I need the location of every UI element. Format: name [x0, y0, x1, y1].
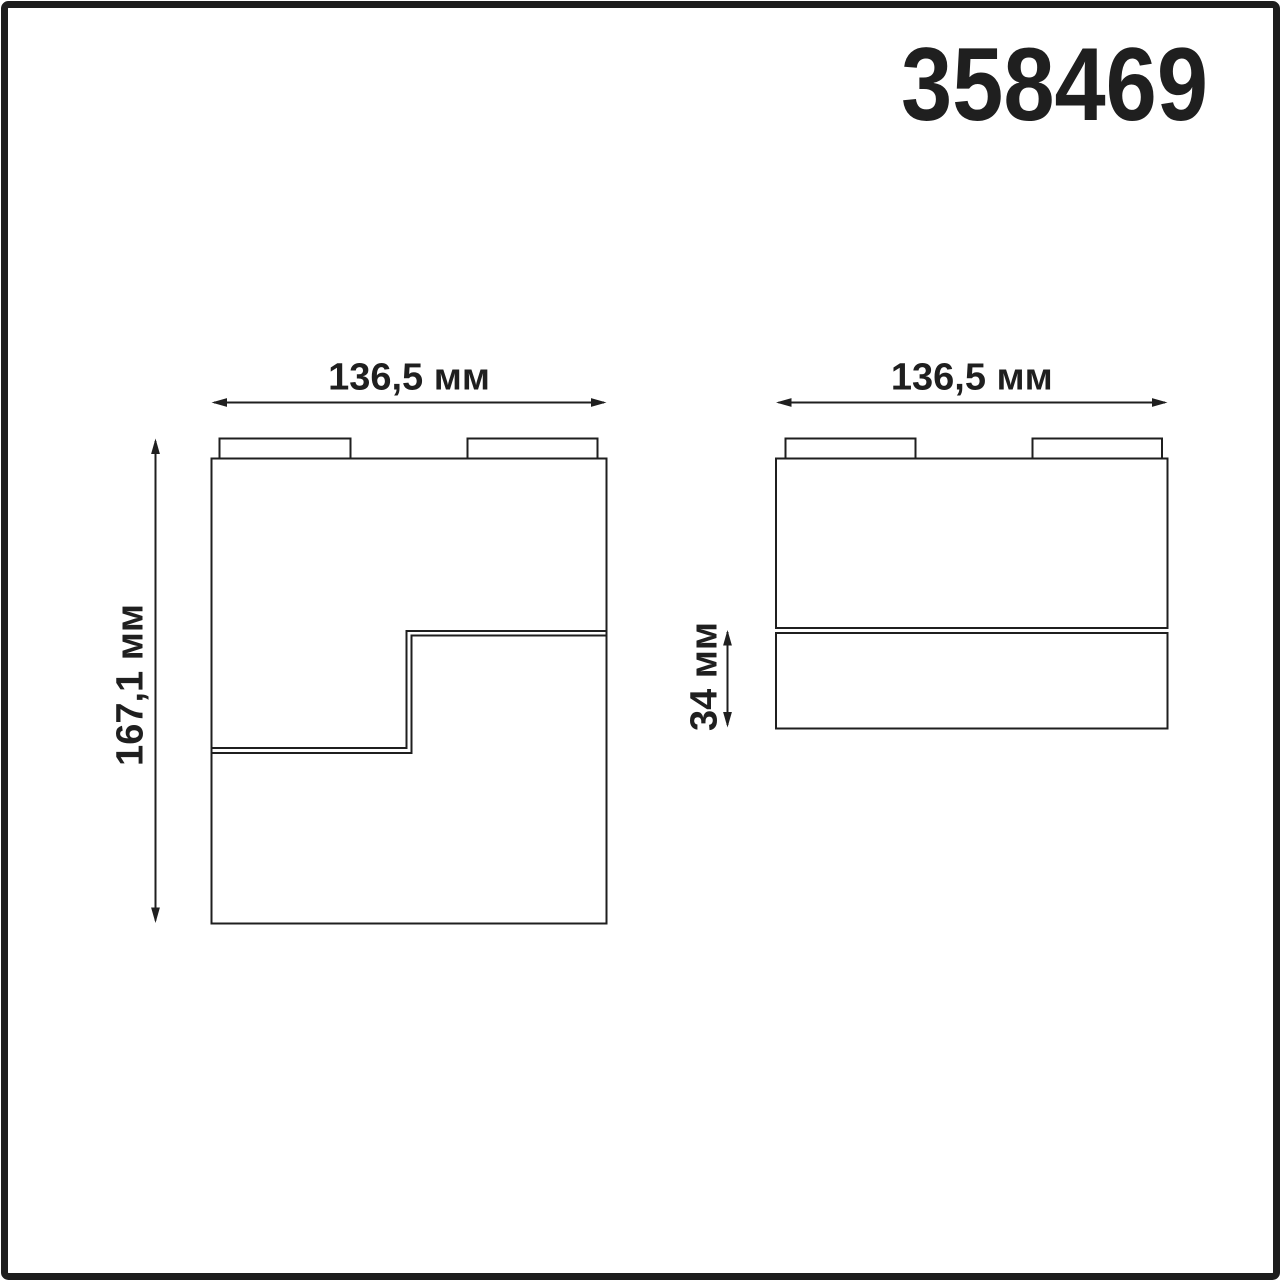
svg-text:34 мм: 34 мм — [684, 622, 726, 731]
svg-text:358469: 358469 — [901, 27, 1208, 143]
svg-text:136,5 мм: 136,5 мм — [891, 357, 1053, 399]
svg-text:167,1 мм: 167,1 мм — [110, 604, 152, 766]
svg-text:136,5 мм: 136,5 мм — [328, 357, 490, 399]
